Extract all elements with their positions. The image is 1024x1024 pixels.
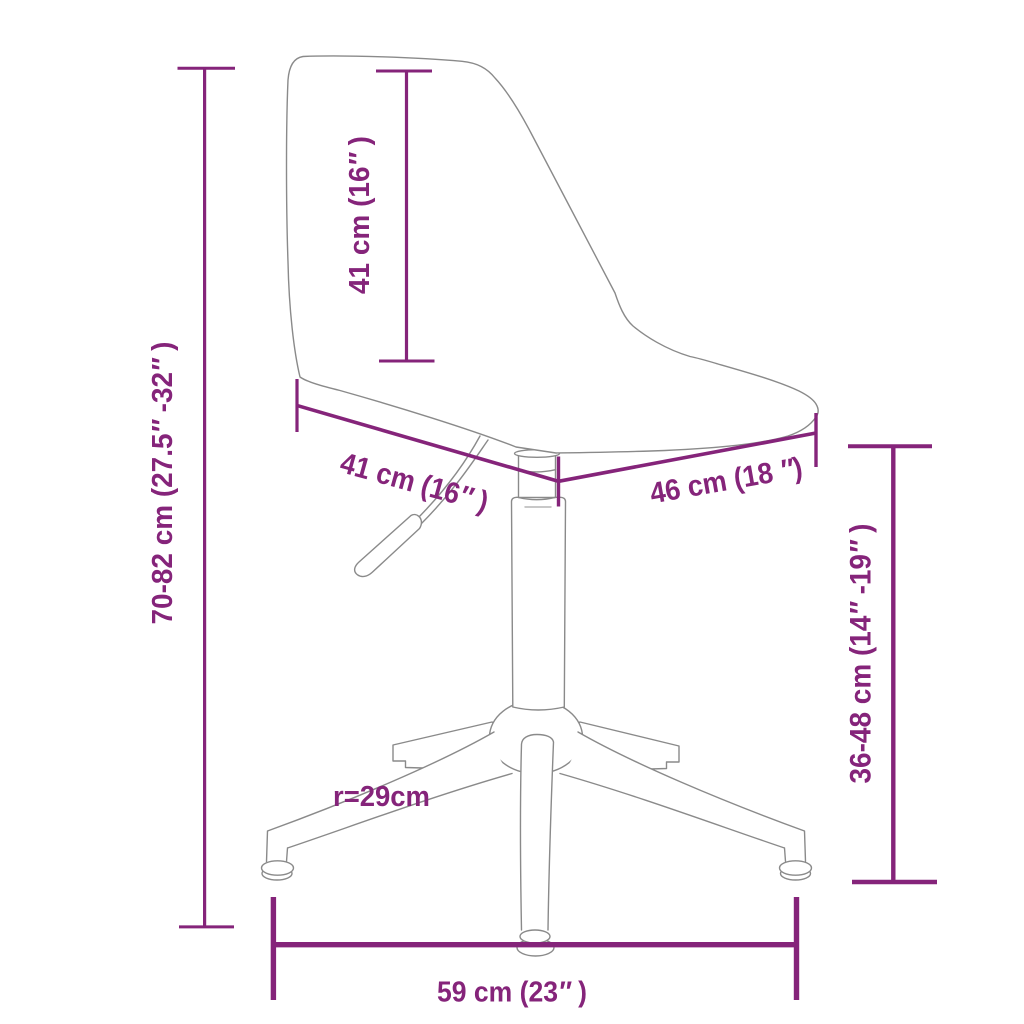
svg-text:59 cm (23″ ): 59 cm (23″ ) [437,977,587,1009]
svg-text:41 cm (16″ ): 41 cm (16″ ) [344,136,376,294]
svg-text:70-82 cm (27.5″ -32″ ): 70-82 cm (27.5″ -32″ ) [147,342,179,625]
svg-text:36-48 cm (14″ -19″ ): 36-48 cm (14″ -19″ ) [845,524,878,784]
svg-text:r=29cm: r=29cm [333,781,430,813]
